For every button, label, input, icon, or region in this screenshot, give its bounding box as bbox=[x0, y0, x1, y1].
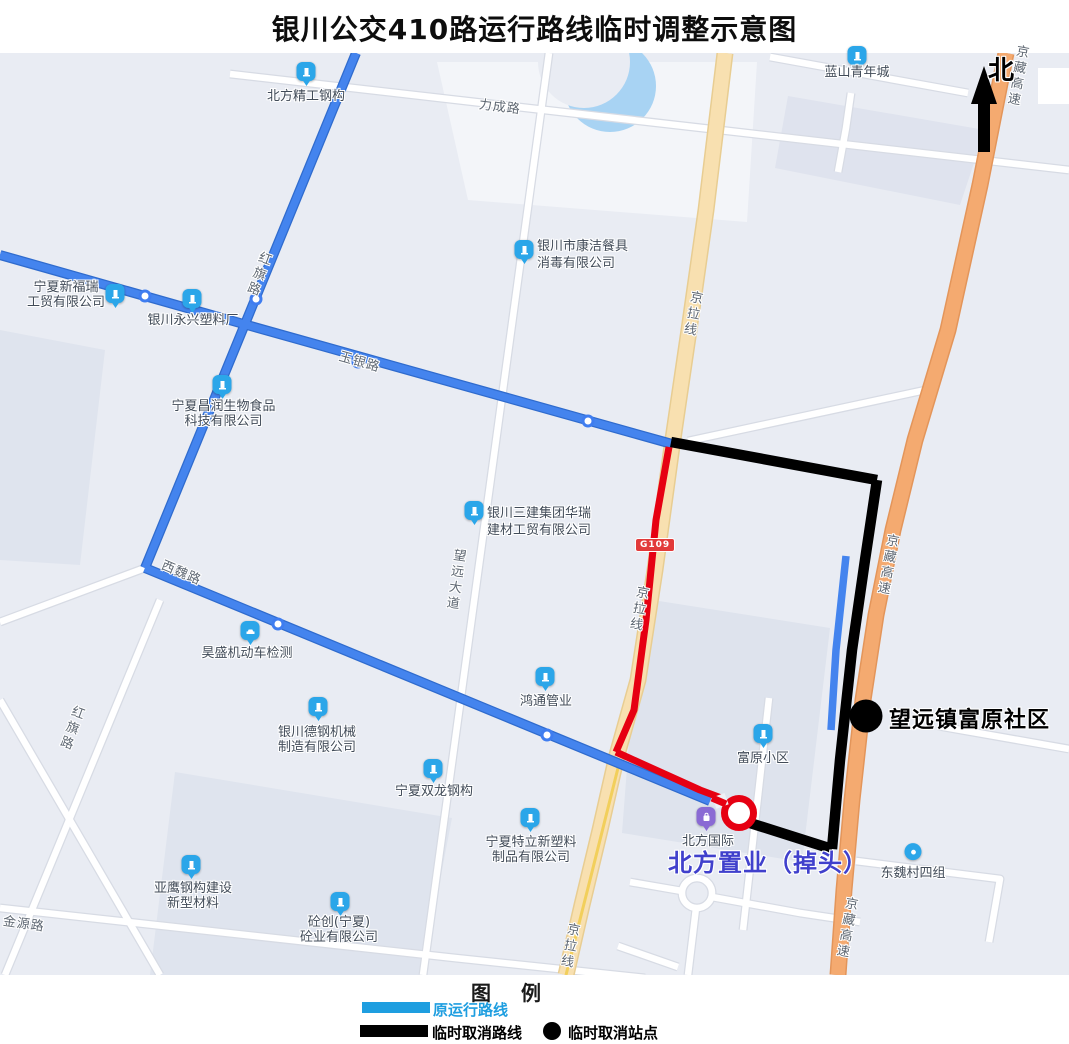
building-icon bbox=[309, 697, 328, 716]
legend-cancelled-stop-label: 临时取消站点 bbox=[568, 1022, 658, 1043]
building-icon bbox=[183, 289, 202, 308]
poi-label: 亚鹰钢构建设新型材料 bbox=[143, 881, 243, 911]
poi-label: 银川三建集团华瑞建材工贸有限公司 bbox=[487, 505, 607, 539]
car-icon bbox=[241, 621, 260, 640]
poi-label: 宁夏双龙钢构 bbox=[388, 784, 480, 799]
building-icon bbox=[465, 501, 484, 520]
poi-label: 北方精工钢构 bbox=[258, 89, 354, 104]
map-cut-box bbox=[1038, 68, 1069, 104]
building-icon bbox=[521, 808, 540, 827]
dot-icon bbox=[905, 843, 922, 860]
building-icon bbox=[424, 759, 443, 778]
g109-route-badge: G109 bbox=[635, 538, 675, 552]
building-icon bbox=[182, 855, 201, 874]
building-icon bbox=[536, 667, 555, 686]
poi-label: 宁夏昌润生物食品科技有限公司 bbox=[166, 399, 281, 429]
poi-label: 银川市康洁餐具消毒有限公司 bbox=[537, 238, 647, 272]
poi-label: 银川永兴塑料厂 bbox=[143, 313, 243, 328]
uturn-label: 北方置业（掉头） bbox=[668, 843, 868, 878]
legend-cancelled-route-label: 临时取消路线 bbox=[432, 1022, 522, 1043]
legend-heading-right: 例 bbox=[521, 977, 541, 1006]
poi-label: 蓝山青年城 bbox=[812, 65, 902, 80]
poi-label: 砼创(宁夏)砼业有限公司 bbox=[293, 915, 385, 945]
north-arrow-shaft bbox=[978, 102, 990, 152]
poi-label: 富原小区 bbox=[729, 751, 797, 766]
poi-label: 银川德钢机械制造有限公司 bbox=[272, 725, 362, 755]
building-icon bbox=[848, 46, 867, 65]
poi-label: 鸿通管业 bbox=[511, 694, 581, 709]
legend-cancelled-stop-icon bbox=[543, 1022, 561, 1040]
poi-label: 宁夏特立新塑料制品有限公司 bbox=[479, 835, 583, 865]
building-icon bbox=[213, 375, 232, 394]
legend-cancelled-route-swatch bbox=[360, 1025, 428, 1037]
bag-icon bbox=[697, 807, 716, 826]
north-label: 北 bbox=[988, 50, 1014, 87]
poi-label: 宁夏新福瑞工贸有限公司 bbox=[14, 280, 118, 310]
cancelled-stop-label: 望远镇富原社区 bbox=[889, 702, 1050, 734]
building-icon bbox=[331, 892, 350, 911]
poi-label: 昊盛机动车检测 bbox=[192, 646, 302, 661]
building-icon bbox=[754, 724, 773, 743]
cancelled-stop-dot bbox=[850, 700, 883, 733]
poi-label: 东魏村四组 bbox=[871, 866, 955, 881]
legend-original-route-swatch bbox=[362, 1002, 430, 1013]
building-icon bbox=[515, 240, 534, 259]
route-adjustment-diagram: 银川公交410路运行路线临时调整示意图 bbox=[0, 0, 1069, 1044]
building-icon bbox=[297, 62, 316, 81]
legend-original-route-label: 原运行路线 bbox=[433, 999, 508, 1020]
